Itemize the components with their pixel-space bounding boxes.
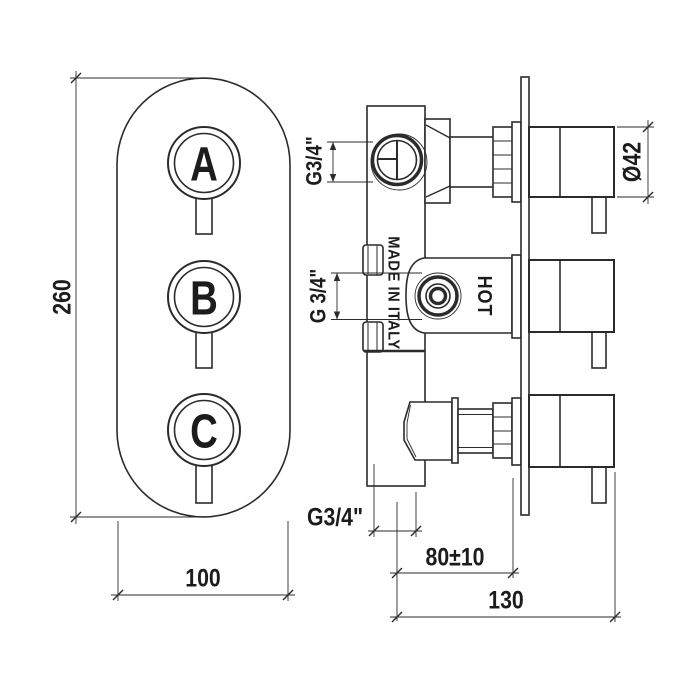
- side-knob-middle-body: [529, 260, 614, 332]
- middle-valve-assembly: HOT: [406, 255, 521, 338]
- side-knob-bottom: [529, 395, 614, 503]
- bottom-valve-step: [452, 398, 458, 463]
- knob-diameter-label: Ø42: [618, 142, 646, 182]
- side-knob-middle-lever: [592, 332, 606, 368]
- front-view: A B C 260: [48, 71, 295, 601]
- top-valve-stem: [450, 137, 495, 187]
- side-knob-top: [529, 127, 614, 233]
- side-port-dim-label: G 3/4": [307, 269, 331, 324]
- side-knob-bottom-lever: [592, 467, 606, 503]
- technical-drawing-canvas: A B C 260: [0, 0, 700, 700]
- top-port-dim-label: G3/4": [303, 136, 327, 185]
- height-dim-label: 260: [48, 279, 76, 314]
- knob-a-label: A: [190, 138, 218, 191]
- dimension-top-port: G3/4": [303, 136, 373, 185]
- side-knob-bottom-body: [529, 395, 614, 467]
- front-knob-a: A: [168, 127, 240, 234]
- top-valve-threaded-section: [493, 127, 513, 197]
- dimension-width-100: 100: [111, 521, 295, 601]
- mixer-valve-drawing: A B C 260: [0, 0, 700, 700]
- side-knob-top-lever: [592, 197, 606, 233]
- wall-plate: [521, 77, 529, 515]
- wall-depth-label: 80±10: [426, 543, 485, 571]
- cartridge-inner-ring: [431, 289, 446, 304]
- made-in-italy-label: MADE IN ITALY: [384, 236, 402, 349]
- width-dim-label: 100: [185, 564, 220, 592]
- bottom-valve-assembly: [404, 398, 521, 465]
- bottom-valve-threaded-section: [493, 403, 512, 458]
- inlet-fitting-top: [363, 245, 383, 275]
- bottom-port-dim-label: G3/4": [307, 503, 363, 531]
- total-depth-label: 130: [488, 586, 523, 614]
- top-valve-flange: [512, 122, 521, 202]
- knob-b-label: B: [190, 272, 218, 325]
- knob-c-label: C: [190, 405, 218, 458]
- side-knob-top-body: [529, 127, 614, 197]
- dimension-knob-diameter: Ø42: [617, 120, 654, 204]
- bottom-valve-stem: [458, 409, 493, 453]
- hot-label: HOT: [473, 276, 495, 317]
- side-knob-middle: [529, 260, 614, 368]
- side-view: HOT MADE IN ITALY: [303, 77, 654, 622]
- dimension-total-depth: 130: [390, 472, 621, 622]
- inlet-fitting-bottom: [363, 322, 383, 352]
- front-knob-b: B: [168, 261, 240, 368]
- bottom-valve-block: [404, 402, 452, 460]
- bottom-valve-flange: [512, 398, 521, 465]
- front-knob-c: C: [168, 394, 240, 503]
- middle-valve-flange: [512, 255, 521, 338]
- dimension-wall-depth: 80±10: [390, 478, 519, 578]
